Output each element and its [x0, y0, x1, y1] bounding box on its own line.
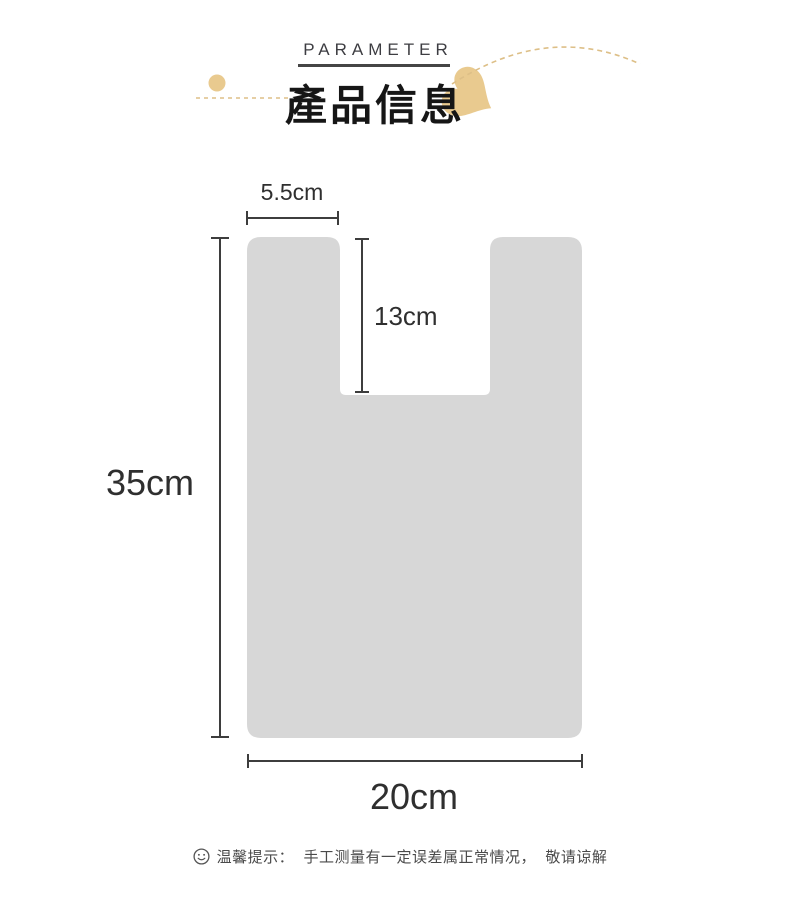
- smiley-face-icon: [193, 848, 210, 865]
- product-info-page: PARAMETER 產品信息 5.5cm 13cm 35cm 20cm: [0, 0, 800, 901]
- handle-width-label: 5.5cm: [232, 181, 352, 204]
- handle-depth-label: 13cm: [374, 303, 438, 329]
- bag-width-label: 20cm: [334, 779, 494, 815]
- page-title: 產品信息: [175, 72, 575, 133]
- measurement-note: 温馨提示： 手工测量有一定误差属正常情况， 敬请谅解: [0, 846, 800, 867]
- bag-height-label: 35cm: [70, 465, 230, 501]
- measurement-note-text: 温馨提示： 手工测量有一定误差属正常情况， 敬请谅解: [217, 846, 608, 867]
